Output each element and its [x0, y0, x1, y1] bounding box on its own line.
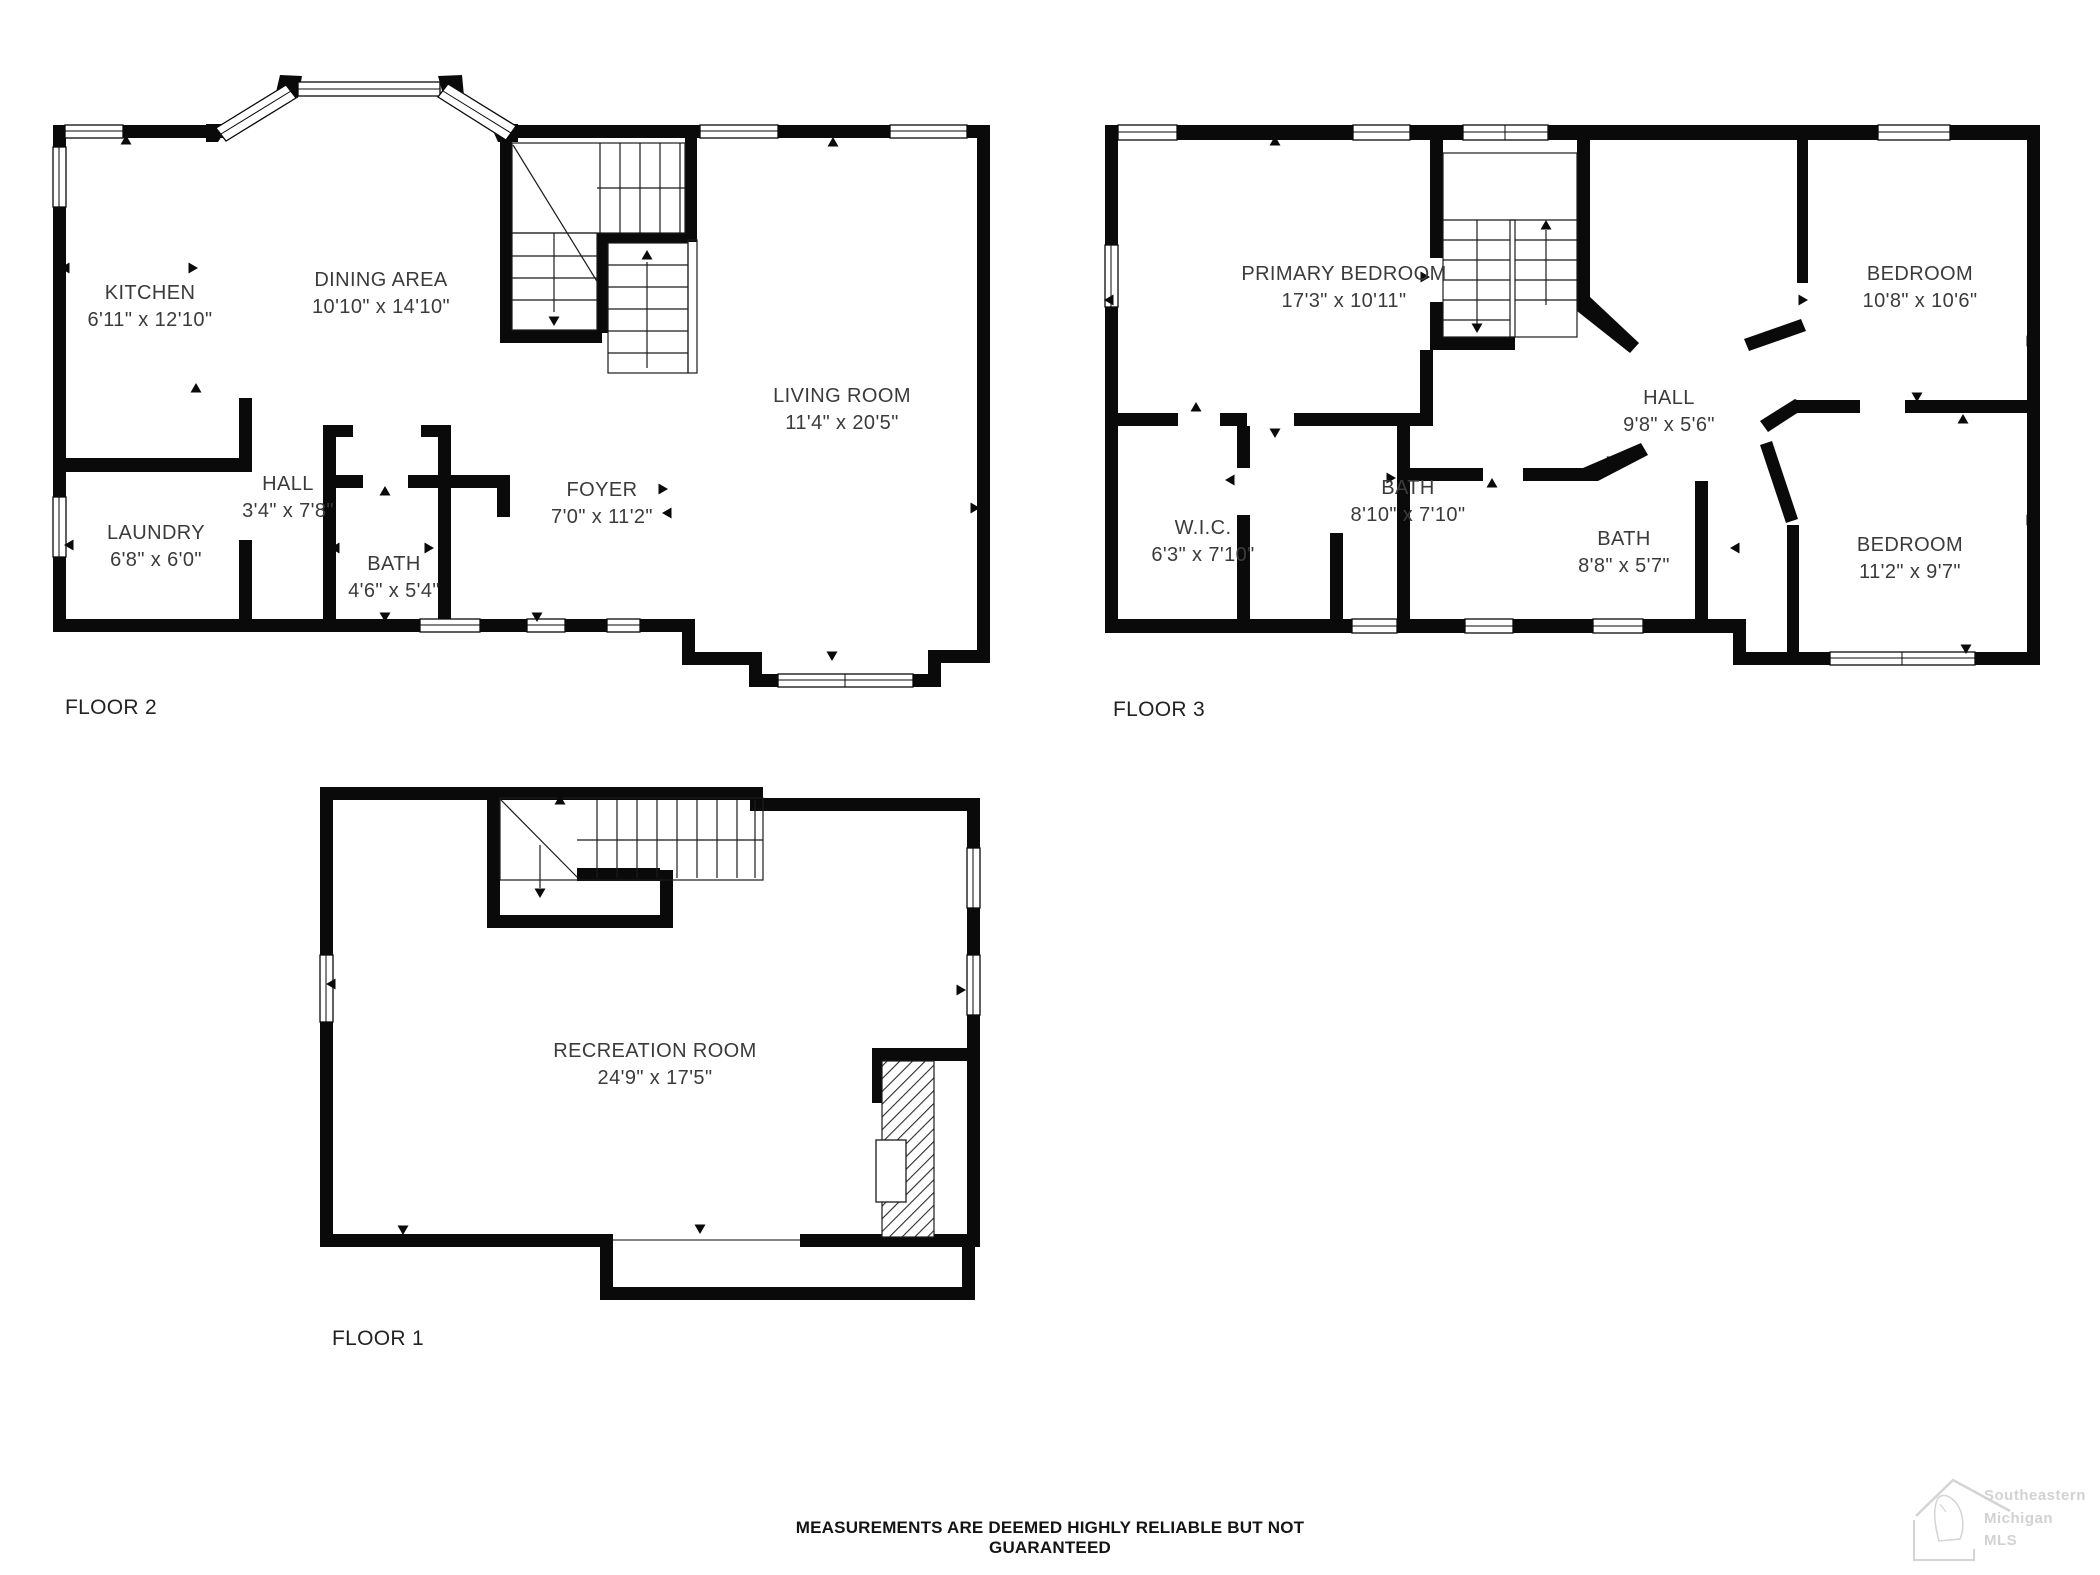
room-dims: 8'10" x 7'10" — [1351, 502, 1466, 529]
room-dims: 4'6" x 5'4" — [348, 578, 440, 605]
room-dims: 11'2" x 9'7" — [1857, 559, 1963, 586]
floor-2-label: FLOOR 2 — [65, 696, 157, 720]
room-label-hall-f2: HALL 3'4" x 7'8" — [242, 471, 334, 525]
room-label-dining-area: DINING AREA 10'10" x 14'10" — [312, 267, 450, 321]
room-dims: 11'4" x 20'5" — [773, 410, 911, 437]
room-label-bath-f2: BATH 4'6" x 5'4" — [348, 551, 440, 605]
room-dims: 10'8" x 10'6" — [1863, 288, 1978, 315]
floor-2-plan — [53, 75, 990, 687]
room-dims: 6'3" x 7'10" — [1151, 542, 1254, 569]
floor-1-label: FLOOR 1 — [332, 1327, 424, 1351]
room-dims: 8'8" x 5'7" — [1578, 553, 1670, 580]
room-dims: 9'8" x 5'6" — [1623, 412, 1715, 439]
room-name: DINING AREA — [312, 267, 450, 294]
room-dims: 17'3" x 10'11" — [1241, 288, 1446, 315]
room-name: RECREATION ROOM — [553, 1038, 756, 1065]
room-name: KITCHEN — [88, 280, 213, 307]
room-label-bedroom-ne: BEDROOM 10'8" x 10'6" — [1863, 261, 1978, 315]
measurements-disclaimer: MEASUREMENTS ARE DEEMED HIGHLY RELIABLE … — [790, 1518, 1310, 1558]
floorplan-page: KITCHEN 6'11" x 12'10" DINING AREA 10'10… — [0, 0, 2100, 1575]
room-name: BATH — [1351, 475, 1466, 502]
room-label-foyer: FOYER 7'0" x 11'2" — [551, 477, 653, 531]
room-name: BEDROOM — [1863, 261, 1978, 288]
room-name: LIVING ROOM — [773, 383, 911, 410]
room-label-kitchen: KITCHEN 6'11" x 12'10" — [88, 280, 213, 334]
room-name: PRIMARY BEDROOM — [1241, 261, 1446, 288]
floor-3-stairs — [1443, 153, 1577, 337]
floor-3-windows — [1105, 125, 1975, 665]
room-name: BATH — [1578, 526, 1670, 553]
mls-logo-text-line3: MLS — [1984, 1532, 2017, 1549]
room-label-bath-small: BATH 8'8" x 5'7" — [1578, 526, 1670, 580]
room-name: HALL — [242, 471, 334, 498]
floorplan-drawing — [0, 0, 2100, 1575]
room-dims: 7'0" x 11'2" — [551, 504, 653, 531]
room-label-laundry: LAUNDRY 6'8" x 6'0" — [107, 520, 205, 574]
room-label-living-room: LIVING ROOM 11'4" x 20'5" — [773, 383, 911, 437]
fireplace — [876, 1061, 934, 1237]
room-label-bath-big: BATH 8'10" x 7'10" — [1351, 475, 1466, 529]
room-label-wic: W.I.C. 6'3" x 7'10" — [1151, 515, 1254, 569]
room-dims: 10'10" x 14'10" — [312, 294, 450, 321]
room-name: BATH — [348, 551, 440, 578]
room-name: BEDROOM — [1857, 532, 1963, 559]
room-label-hall-f3: HALL 9'8" x 5'6" — [1623, 385, 1715, 439]
floor-1-door-arrows — [326, 795, 966, 1235]
room-dims: 6'11" x 12'10" — [88, 307, 213, 334]
room-label-primary-bedroom: PRIMARY BEDROOM 17'3" x 10'11" — [1241, 261, 1446, 315]
mls-logo-text-line2: Michigan — [1984, 1510, 2053, 1527]
room-name: HALL — [1623, 385, 1715, 412]
room-name: FOYER — [551, 477, 653, 504]
floor-3-label: FLOOR 3 — [1113, 698, 1205, 722]
room-label-bedroom-se: BEDROOM 11'2" x 9'7" — [1857, 532, 1963, 586]
room-label-recreation-room: RECREATION ROOM 24'9" x 17'5" — [553, 1038, 756, 1092]
mls-logo-text-line1: Southeastern — [1984, 1487, 2086, 1504]
floor-2-walls — [53, 75, 990, 687]
room-dims: 24'9" x 17'5" — [553, 1065, 756, 1092]
room-name: W.I.C. — [1151, 515, 1254, 542]
room-dims: 6'8" x 6'0" — [107, 547, 205, 574]
room-dims: 3'4" x 7'8" — [242, 498, 334, 525]
room-name: LAUNDRY — [107, 520, 205, 547]
